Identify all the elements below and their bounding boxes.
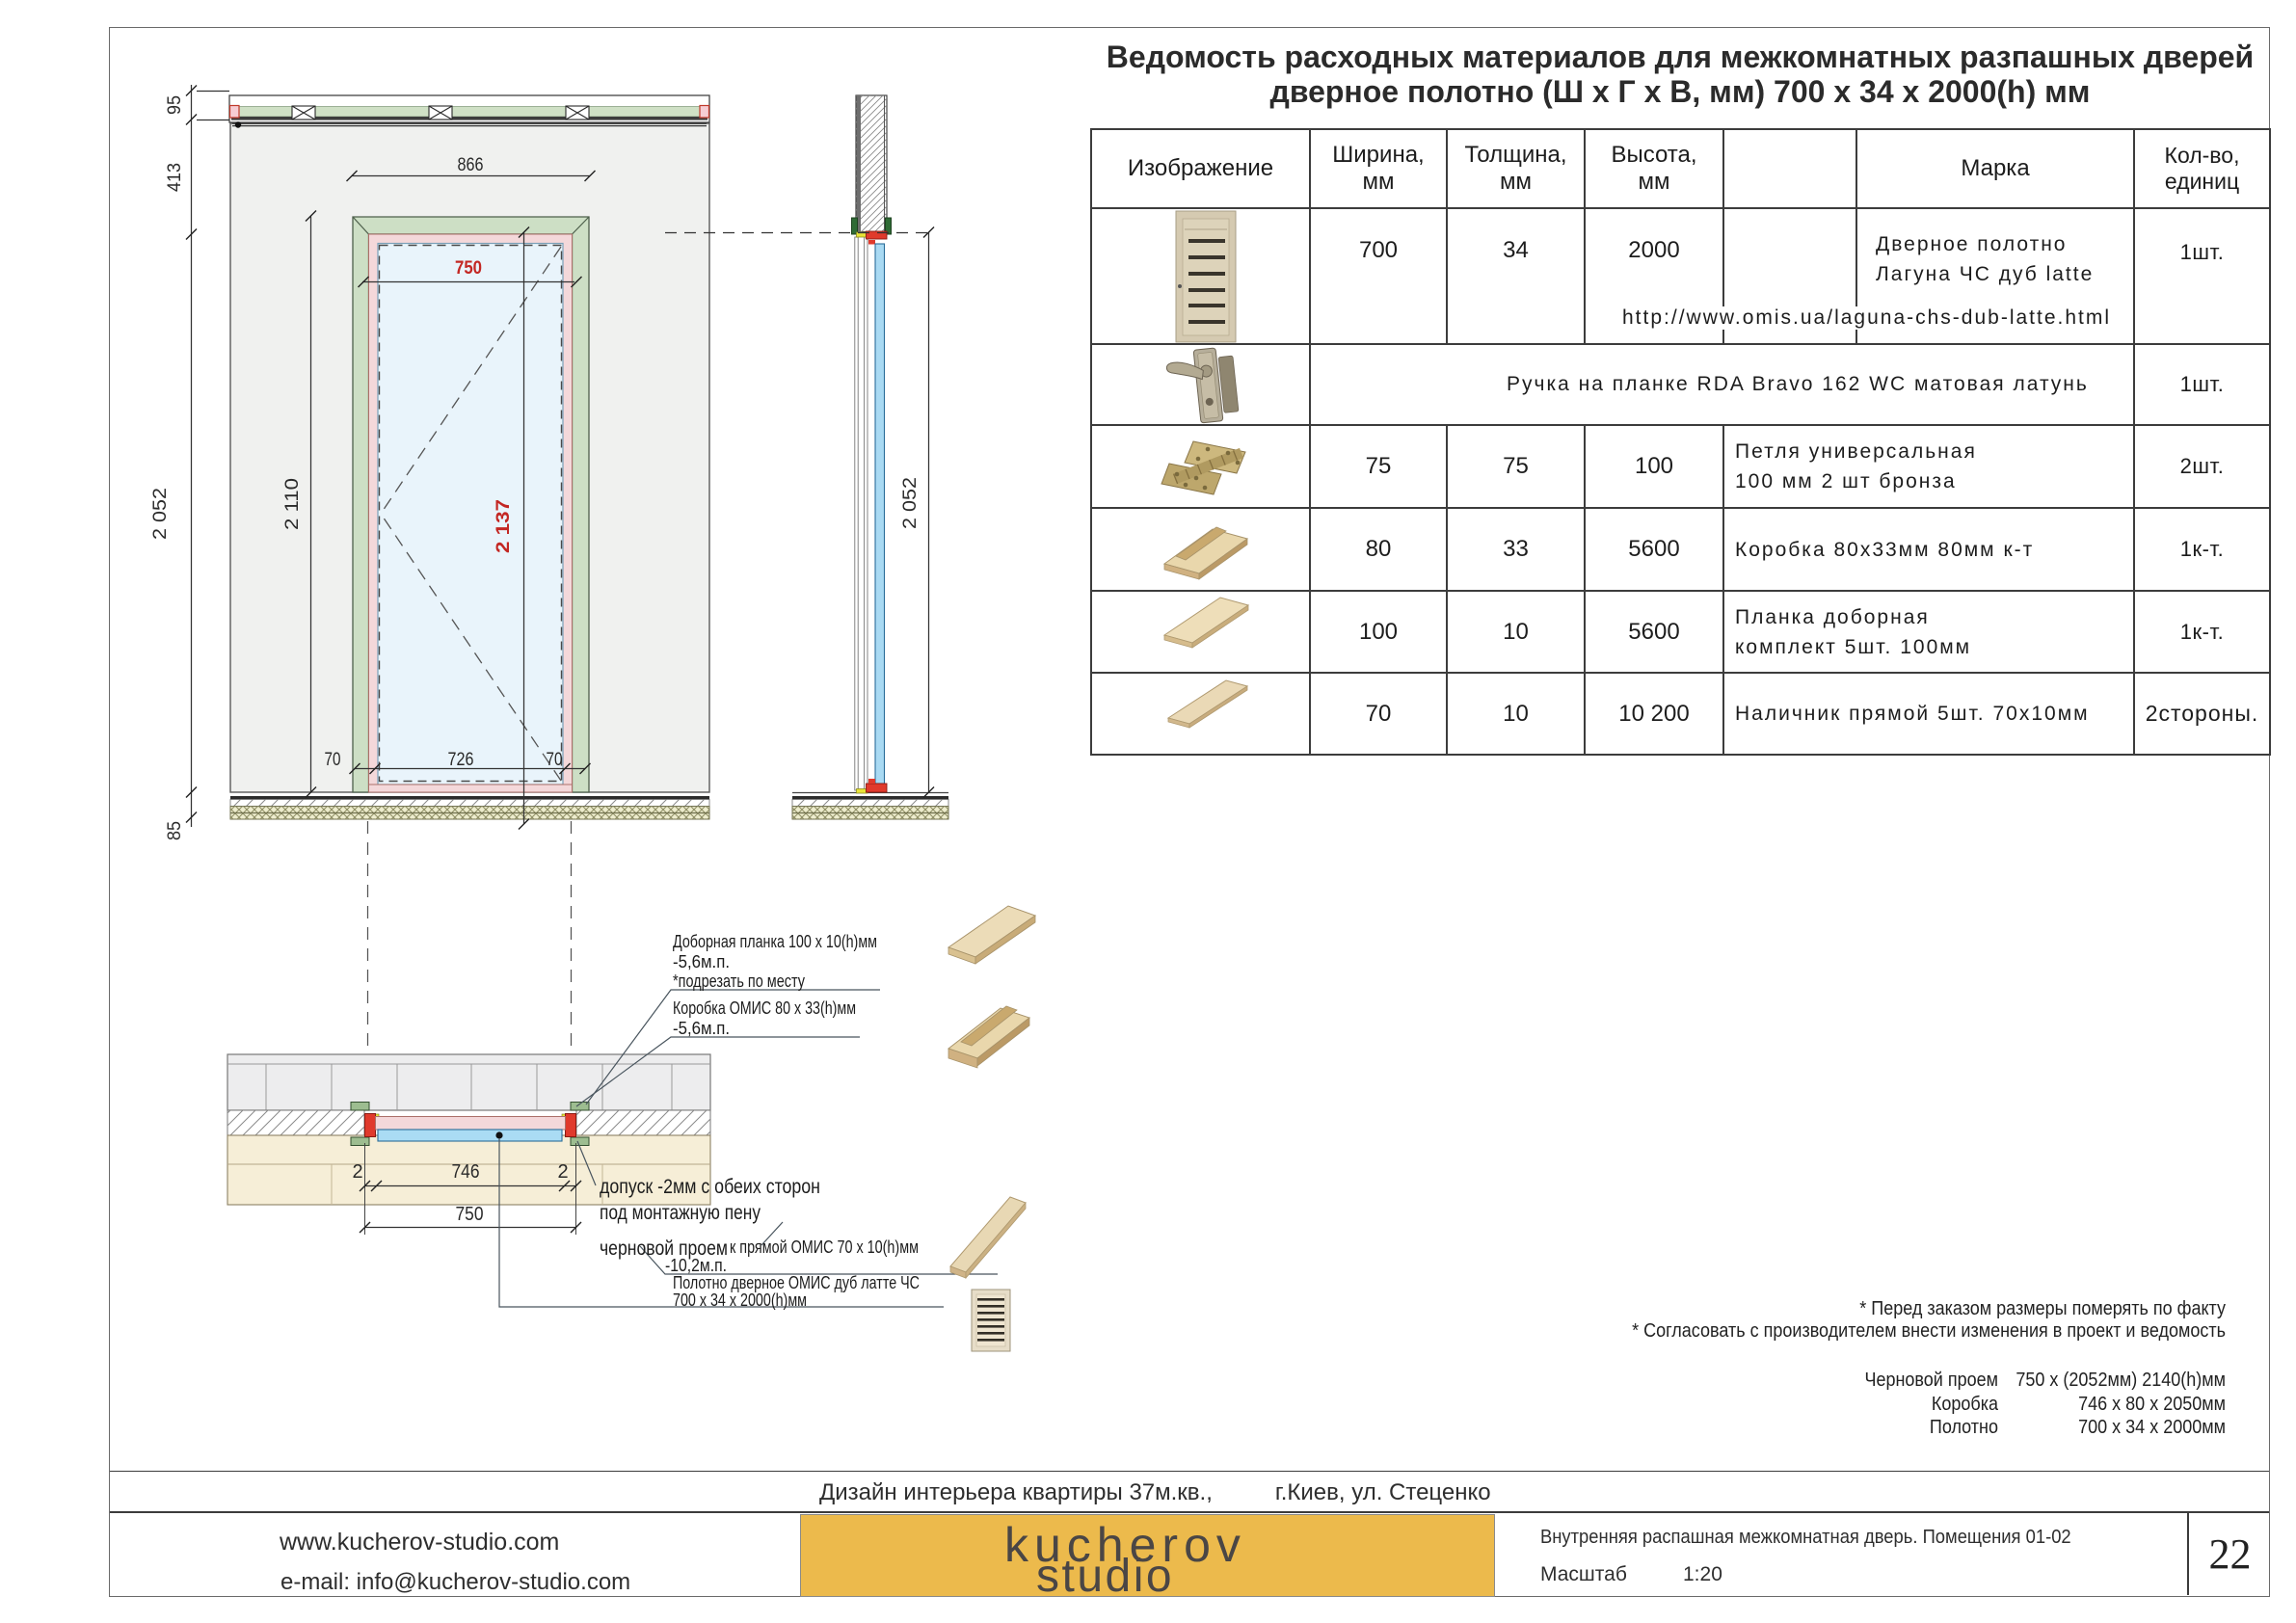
svg-text:допуск -2мм с обеих сторон: допуск -2мм с обеих сторон [600, 1176, 820, 1198]
svg-text:-10,2м.п.: -10,2м.п. [665, 1256, 727, 1275]
svg-text:750: 750 [456, 1204, 484, 1225]
svg-text:-5,6м.п.: -5,6м.п. [673, 1019, 730, 1038]
svg-text:85: 85 [165, 821, 185, 840]
svg-text:70: 70 [325, 750, 341, 770]
svg-text:Доборная планка 100 х 10(h)мм: Доборная планка 100 х 10(h)мм [673, 932, 877, 951]
svg-text:2 052: 2 052 [900, 477, 921, 529]
svg-text:866: 866 [458, 155, 484, 175]
svg-text:2: 2 [557, 1161, 568, 1183]
svg-text:746: 746 [452, 1161, 480, 1183]
svg-text:2 110: 2 110 [282, 478, 303, 530]
svg-text:70: 70 [547, 750, 563, 770]
svg-text:2: 2 [352, 1161, 362, 1183]
svg-text:под монтажную пену: под монтажную пену [600, 1202, 761, 1224]
svg-text:413: 413 [165, 163, 185, 192]
svg-text:к прямой ОМИС 70 х 10(h)мм: к прямой ОМИС 70 х 10(h)мм [730, 1237, 919, 1257]
svg-text:2 052: 2 052 [150, 488, 171, 540]
svg-text:726: 726 [448, 750, 474, 770]
svg-text:750: 750 [455, 258, 482, 279]
svg-text:700 х 34 х 2000(h)мм: 700 х 34 х 2000(h)мм [673, 1290, 807, 1310]
svg-text:*подрезать по месту: *подрезать по месту [673, 971, 805, 991]
svg-text:Полотно дверное ОМИС дуб латте: Полотно дверное ОМИС дуб латте ЧС [673, 1273, 920, 1292]
svg-text:Коробка ОМИС 80 х 33(h)мм: Коробка ОМИС 80 х 33(h)мм [673, 998, 856, 1018]
svg-text:-5,6м.п.: -5,6м.п. [673, 952, 730, 971]
svg-text:2 137: 2 137 [494, 499, 514, 553]
svg-text:95: 95 [165, 95, 185, 115]
